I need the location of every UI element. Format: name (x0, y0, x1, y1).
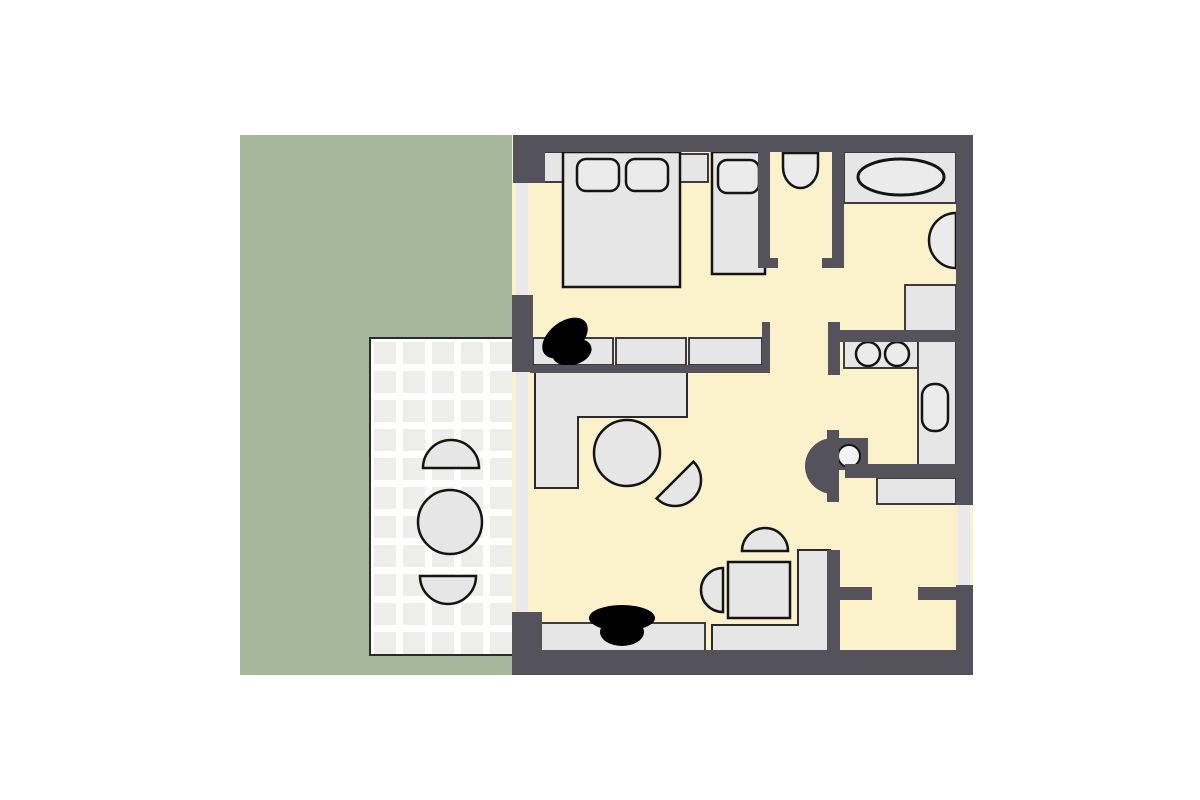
door-jamb-bathroom (822, 258, 832, 268)
living-tv-base (600, 618, 644, 646)
door-jamb-bedroom (768, 258, 778, 268)
bathtub (858, 159, 944, 195)
floor-plan-svg (0, 0, 1200, 800)
wall-entry-stub-left (832, 587, 872, 600)
wall-bedroom-right (758, 148, 770, 268)
hob-burner-right (885, 342, 909, 366)
nightstand-right (680, 154, 708, 182)
floor-plan-image (0, 0, 1200, 800)
wall-left-corner-top (513, 135, 545, 183)
wall-kitchen-bottom (845, 464, 956, 478)
stove-flue (838, 445, 860, 467)
kitchen-sink (922, 384, 948, 431)
pillow-single (718, 160, 759, 193)
wall-right-lower (956, 585, 973, 675)
wall-vestibule-left (827, 550, 840, 657)
bathroom-cabinet (905, 285, 956, 333)
wall-bottom (512, 650, 973, 675)
wardrobe-segment-2 (616, 338, 686, 365)
wall-top (515, 135, 973, 152)
wall-bathroom-kitchen-divider (832, 330, 956, 342)
wall-kitchen-stub (828, 322, 840, 375)
wall-divider-stub (762, 322, 770, 365)
round-table (594, 420, 660, 486)
patio-table (418, 490, 482, 554)
wall-left-corner-bottom (512, 612, 542, 657)
dining-table (728, 562, 790, 618)
wall-left-mid-block (512, 295, 533, 372)
hall-shelf (877, 478, 956, 504)
pillow-left (577, 159, 619, 191)
window-bedroom (516, 183, 528, 295)
wall-stove-bar (827, 430, 839, 502)
wall-bedroom-living-divider (530, 365, 770, 373)
window-living (516, 372, 528, 612)
wall-bathroom-left (832, 148, 844, 268)
pillow-right (626, 159, 668, 191)
hob-burner-left (856, 342, 880, 366)
wall-right-upper (956, 135, 973, 505)
wardrobe-segment-3 (689, 338, 762, 365)
window-hall (958, 505, 970, 585)
wall-entry-stub-right (918, 587, 956, 600)
corridor-washbasin (783, 153, 818, 188)
